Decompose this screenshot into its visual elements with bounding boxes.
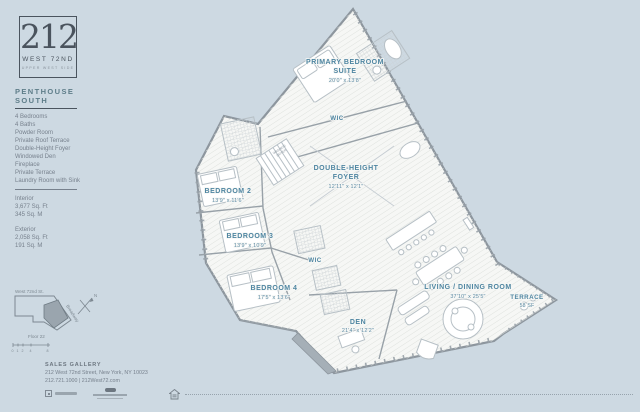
sales-gallery-contact: 212.721.1000 | 212West72.com	[45, 378, 635, 384]
sales-gallery-address: 212 West 72nd Street, New York, NY 10023	[45, 370, 635, 376]
equal-housing-icon	[169, 389, 180, 400]
marketing-logo-wordmark	[93, 394, 127, 396]
room-dim-primary-bedroom: 20'0" x 13'8"	[329, 78, 361, 84]
room-dim-living-dining: 37'10" x 25'5"	[450, 294, 485, 300]
room-label-primary-bedroom-2: SUITE	[333, 68, 356, 75]
room-dim-bedroom-2: 13'9" x 11'6"	[212, 198, 244, 204]
room-label-bedroom-2: BEDROOM 2	[205, 188, 252, 195]
room-label-living-dining: LIVING / DINING ROOM	[424, 284, 511, 291]
room-label-primary-bedroom: PRIMARY BEDROOM	[306, 59, 384, 66]
footer: SALES GALLERY 212 West 72nd Street, New …	[45, 362, 635, 408]
developer-logo-wordmark	[55, 392, 77, 395]
room-dim-bedroom-4: 17'5" x 13'6"	[258, 295, 290, 301]
room-dim-foyer: 12'11" x 12'1"	[329, 184, 364, 190]
room-dim-den: 21'4" x 12'2"	[342, 328, 374, 334]
disclaimer-text	[185, 394, 633, 395]
room-label-den: DEN	[350, 319, 366, 326]
brochure-page: 212 WEST 72ND UPPER WEST SIDE PENTHOUSE …	[0, 0, 640, 412]
floor-plan: PRIMARY BEDROOM SUITE 20'0" x 13'8" WIC …	[0, 0, 640, 412]
room-label-wic-primary: WIC	[330, 115, 344, 122]
room-label-bedroom-3: BEDROOM 3	[227, 233, 274, 240]
room-label-terrace: TERRACE	[510, 294, 543, 301]
marketing-logo-icon	[105, 388, 116, 392]
hall-bath	[294, 226, 325, 254]
room-label-foyer-2: FOYER	[333, 174, 360, 181]
developer-logo-icon	[45, 390, 52, 397]
room-dim-bedroom-3: 13'9" x 10'9"	[234, 243, 266, 249]
marketing-logo-wordmark-2	[97, 398, 123, 400]
sales-gallery-label: SALES GALLERY	[45, 362, 635, 368]
round-lounge	[443, 299, 483, 339]
room-label-foyer: DOUBLE-HEIGHT	[314, 165, 379, 172]
room-label-bedroom-4: BEDROOM 4	[251, 285, 298, 292]
room-label-wic-bedroom4: WIC	[308, 257, 322, 264]
footer-logos	[45, 388, 635, 402]
bath-bedroom2	[220, 117, 261, 161]
room-dim-terrace: 58 SF	[520, 303, 535, 309]
